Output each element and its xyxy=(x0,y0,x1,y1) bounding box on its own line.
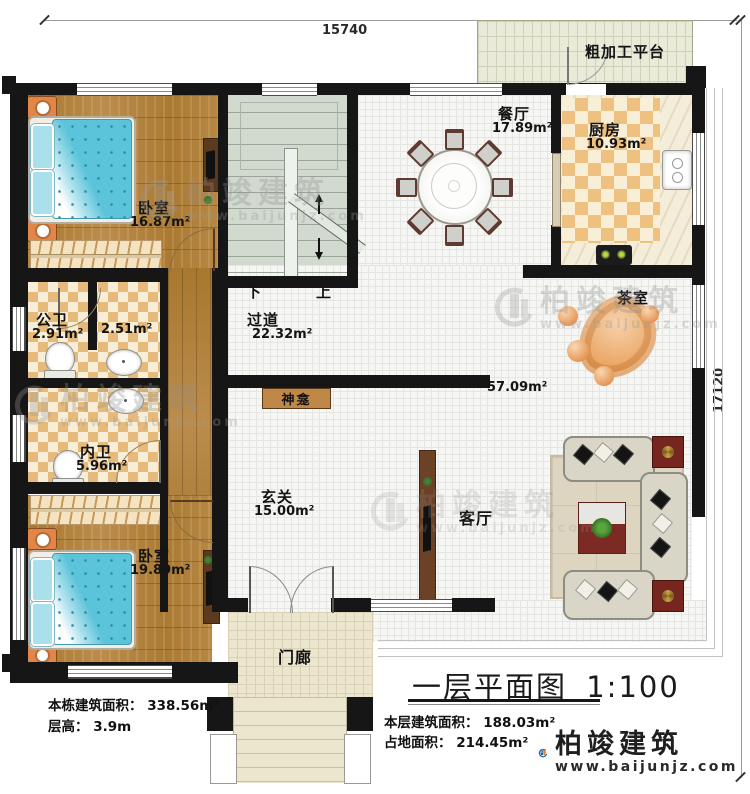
tv-cabinet xyxy=(419,450,436,600)
window xyxy=(77,83,172,96)
room-area-public-bath: 2.91m² xyxy=(32,327,83,342)
stair-arrow-head xyxy=(315,252,323,260)
chair xyxy=(396,178,417,197)
side-table xyxy=(652,580,684,612)
room-area-washroom: 2.51m² xyxy=(101,322,152,337)
pillow xyxy=(31,602,54,646)
terrace-line xyxy=(378,648,715,649)
note-footprint: 占地面积： 214.45m² xyxy=(384,733,528,754)
wall xyxy=(212,268,228,612)
pillow xyxy=(31,124,54,170)
floor-plan-canvas: 15740 17120 xyxy=(0,0,750,794)
stairs-up-label: 上 xyxy=(316,281,332,302)
room-area-foyer: 15.00m² xyxy=(254,504,314,519)
coffee-table xyxy=(578,502,626,554)
chair xyxy=(445,225,464,246)
window xyxy=(371,599,452,612)
eave-line xyxy=(706,88,707,641)
window xyxy=(692,285,705,368)
wall xyxy=(523,265,705,278)
wall xyxy=(10,378,160,388)
brand-logo-icon xyxy=(538,723,547,783)
wall xyxy=(551,95,561,153)
room-area-inner-bath: 5.96m² xyxy=(76,459,127,474)
sliding-door xyxy=(552,153,561,227)
wall xyxy=(347,95,358,288)
stove xyxy=(596,245,632,265)
wall xyxy=(331,598,371,612)
nightstand xyxy=(27,528,57,550)
tea-stool xyxy=(594,366,614,386)
pillow xyxy=(31,558,54,602)
wall-pilaster xyxy=(686,66,706,88)
tea-stool xyxy=(567,340,589,362)
top-dimension-value: 15740 xyxy=(322,23,367,38)
door-opening xyxy=(566,84,606,95)
terrace-line xyxy=(378,640,707,641)
eave-line xyxy=(722,88,723,657)
window xyxy=(12,415,26,462)
terrace-line xyxy=(378,656,723,657)
wall xyxy=(10,268,168,282)
shrine-box: 神龛 xyxy=(262,388,331,409)
pillow xyxy=(31,170,54,216)
note-floor-height: 层高： 3.9m xyxy=(48,717,131,738)
window xyxy=(262,83,317,96)
sink xyxy=(106,349,142,376)
stair-rail xyxy=(284,148,298,278)
chair xyxy=(492,178,513,197)
plant xyxy=(204,196,212,204)
room-area-kitchen: 10.93m² xyxy=(586,137,646,152)
room-label-tea: 茶室 xyxy=(617,287,649,308)
stairs-down-label: 下 xyxy=(246,281,262,302)
window xyxy=(12,307,26,351)
wall xyxy=(212,598,248,612)
note-level-area: 本层建筑面积： 188.03m² xyxy=(384,713,555,734)
room-area-bedroom2: 19.89m² xyxy=(130,563,190,578)
tea-stool xyxy=(558,306,578,326)
room-area-living: 57.09m² xyxy=(487,380,547,395)
mattress xyxy=(52,119,132,219)
column-base xyxy=(210,734,237,784)
room-label-living: 客厅 xyxy=(459,505,493,529)
wall xyxy=(10,482,160,494)
side-table xyxy=(652,436,684,468)
title-underline xyxy=(408,699,600,702)
wall-pilaster xyxy=(2,654,16,672)
dining-table-center xyxy=(448,180,460,192)
note-building-area: 本栋建筑面积： 338.56m² xyxy=(48,696,219,717)
chair xyxy=(445,129,464,150)
room-label-platform: 粗加工平台 xyxy=(585,41,665,62)
window xyxy=(410,83,502,96)
room-area-dining: 17.89m² xyxy=(492,121,552,136)
title-underline-thin xyxy=(408,704,600,705)
eave-line xyxy=(714,88,715,649)
brand-site: www.baijunjz.com xyxy=(555,759,738,775)
room-area-bedroom1: 16.87m² xyxy=(130,215,190,230)
brand-name: 柏竣建筑 xyxy=(555,731,738,759)
sink xyxy=(108,388,144,414)
right-dimension-line xyxy=(741,20,742,778)
plan-title-scale: 1:100 xyxy=(586,670,680,704)
plant xyxy=(204,556,212,564)
room-label-porch: 门廊 xyxy=(278,644,312,668)
shrine-label: 神龛 xyxy=(281,389,311,408)
wall xyxy=(452,598,495,612)
wall xyxy=(212,375,490,388)
window xyxy=(692,133,705,225)
porch-steps xyxy=(233,697,347,783)
window xyxy=(12,548,26,640)
wall xyxy=(218,95,228,270)
stair-arrow-head xyxy=(315,194,323,202)
room-area-corridor: 22.32m² xyxy=(252,327,312,342)
brand-logo: 柏竣建筑 www.baijunjz.com xyxy=(538,720,738,786)
column-base xyxy=(344,734,371,784)
kitchen-sink xyxy=(662,150,692,190)
mattress xyxy=(52,553,132,645)
wall-pilaster xyxy=(2,76,16,94)
window xyxy=(68,665,172,679)
wardrobe xyxy=(30,495,162,525)
